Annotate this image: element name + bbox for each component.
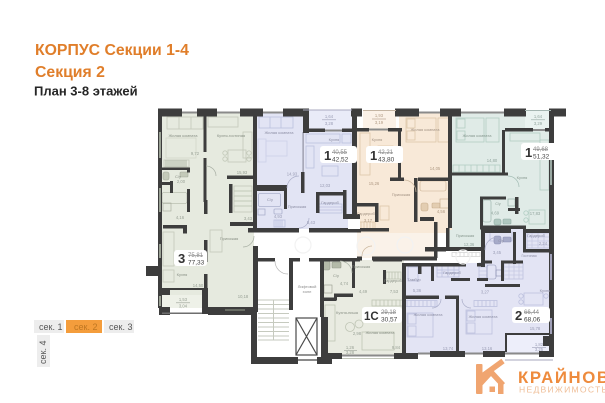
svg-text:15,78: 15,78 [530,326,541,331]
svg-text:1: 1 [370,148,377,163]
svg-text:Жилая комната: Жилая комната [169,133,199,138]
svg-text:С/у: С/у [495,202,501,206]
svg-text:1,64: 1,64 [534,114,543,119]
svg-text:13,74: 13,74 [443,346,454,351]
svg-text:Гардероб: Гардероб [527,233,545,238]
svg-text:Кухня: Кухня [177,272,188,277]
svg-text:Жилая комната: Жилая комната [265,130,295,135]
svg-text:77,33: 77,33 [188,260,205,267]
svg-text:68,06: 68,06 [524,317,541,324]
svg-text:1С: 1С [364,311,379,323]
svg-text:сек. 1: сек. 1 [39,322,62,332]
svg-text:Жилая комната: Жилая комната [366,330,396,335]
svg-text:3,27: 3,27 [481,290,490,295]
svg-text:Прихожая: Прихожая [288,204,307,209]
svg-text:75,81: 75,81 [188,253,204,259]
svg-text:3,28: 3,28 [346,350,355,355]
svg-text:42,21: 42,21 [378,150,394,156]
svg-text:9,84: 9,84 [392,345,401,350]
svg-text:Кухня: Кухня [372,137,383,142]
svg-text:5,43: 5,43 [307,220,316,225]
svg-text:3,17: 3,17 [364,218,373,223]
svg-text:3,28: 3,28 [325,121,334,126]
svg-text:1,64: 1,64 [325,114,334,119]
svg-text:2: 2 [515,308,522,323]
svg-text:Прихожая: Прихожая [220,236,239,241]
svg-text:2,24: 2,24 [539,241,548,246]
svg-text:Жилая комната: Жилая комната [469,314,499,319]
svg-text:3,04: 3,04 [179,304,188,309]
svg-text:12,36: 12,36 [464,242,475,247]
svg-text:13,16: 13,16 [482,346,493,351]
svg-text:Жилая комната: Жилая комната [411,127,441,132]
svg-text:План 3-8 этажей: План 3-8 этажей [34,84,138,99]
svg-text:сек. 4: сек. 4 [38,341,48,364]
svg-text:1: 1 [525,145,532,160]
svg-text:51,32: 51,32 [533,154,550,161]
svg-text:40,55: 40,55 [332,150,348,156]
svg-text:Прихожая: Прихожая [392,192,411,197]
svg-text:10,18: 10,18 [238,294,249,299]
svg-text:С/у: С/у [498,239,504,243]
svg-text:2,00: 2,00 [177,179,186,184]
svg-text:сек. 2: сек. 2 [74,322,97,332]
svg-text:9,72: 9,72 [191,151,200,156]
svg-text:Жилая комната: Жилая комната [463,133,493,138]
svg-text:14,50: 14,50 [193,283,204,288]
svg-text:НЕДВИЖИМОСТЬ: НЕДВИЖИМОСТЬ [519,385,605,395]
svg-text:3: 3 [178,251,185,266]
svg-text:Кухня-гостиная: Кухня-гостиная [217,133,245,138]
svg-text:Гардероб: Гардероб [321,200,339,205]
svg-text:14,93: 14,93 [287,172,298,177]
svg-text:Прихожая: Прихожая [456,233,475,238]
svg-text:2,98: 2,98 [353,331,362,336]
svg-text:Тамбур: Тамбур [407,277,421,282]
svg-text:Прихожая: Прихожая [352,264,371,269]
svg-text:3,25: 3,25 [535,347,544,352]
svg-text:Кухня: Кухня [517,175,528,180]
svg-text:КОРПУС Секции 1-4: КОРПУС Секции 1-4 [35,42,189,59]
svg-text:29,18: 29,18 [381,310,397,316]
svg-text:Жилая комната: Жилая комната [414,312,444,317]
svg-text:1,93: 1,93 [375,113,384,118]
svg-text:Кухня: Кухня [329,137,340,142]
svg-text:С/у: С/у [333,273,339,278]
svg-text:С/у: С/у [267,197,273,202]
svg-text:15,93: 15,93 [237,170,248,175]
svg-text:30,57: 30,57 [381,317,398,324]
svg-text:3,43: 3,43 [244,216,253,221]
svg-text:Гардероб: Гардероб [443,270,461,275]
svg-text:3,19: 3,19 [375,120,384,125]
svg-text:3,45: 3,45 [493,250,502,255]
svg-text:холл: холл [303,289,312,294]
svg-text:5,36: 5,36 [413,288,422,293]
svg-text:4,74: 4,74 [340,281,349,286]
svg-text:1: 1 [324,148,331,163]
svg-text:сек. 3: сек. 3 [109,322,132,332]
svg-text:4,49: 4,49 [359,289,368,294]
svg-text:Кухня: Кухня [540,288,551,293]
svg-text:66,44: 66,44 [524,310,540,316]
svg-text:Гостиная: Гостиная [521,254,536,258]
svg-text:17,83: 17,83 [530,211,541,216]
svg-text:Кухня-ниша: Кухня-ниша [336,310,359,315]
svg-text:4,16: 4,16 [176,215,185,220]
svg-text:42,52: 42,52 [332,157,349,164]
svg-text:15,26: 15,26 [369,181,380,186]
svg-text:49,68: 49,68 [533,147,549,153]
svg-text:14,80: 14,80 [487,158,498,163]
svg-text:1,53: 1,53 [179,297,188,302]
svg-text:43,80: 43,80 [378,157,395,164]
svg-text:4,56: 4,56 [437,209,446,214]
svg-text:4,93: 4,93 [274,214,283,219]
svg-text:Гардероб: Гардероб [384,278,402,283]
svg-text:12,03: 12,03 [320,183,331,188]
svg-text:Секция 2: Секция 2 [35,64,105,81]
svg-text:14,05: 14,05 [430,166,441,171]
svg-text:7,53: 7,53 [390,289,399,294]
svg-text:4,69: 4,69 [491,211,500,216]
svg-text:Гардероб: Гардероб [357,211,375,216]
svg-text:3,29: 3,29 [534,121,543,126]
